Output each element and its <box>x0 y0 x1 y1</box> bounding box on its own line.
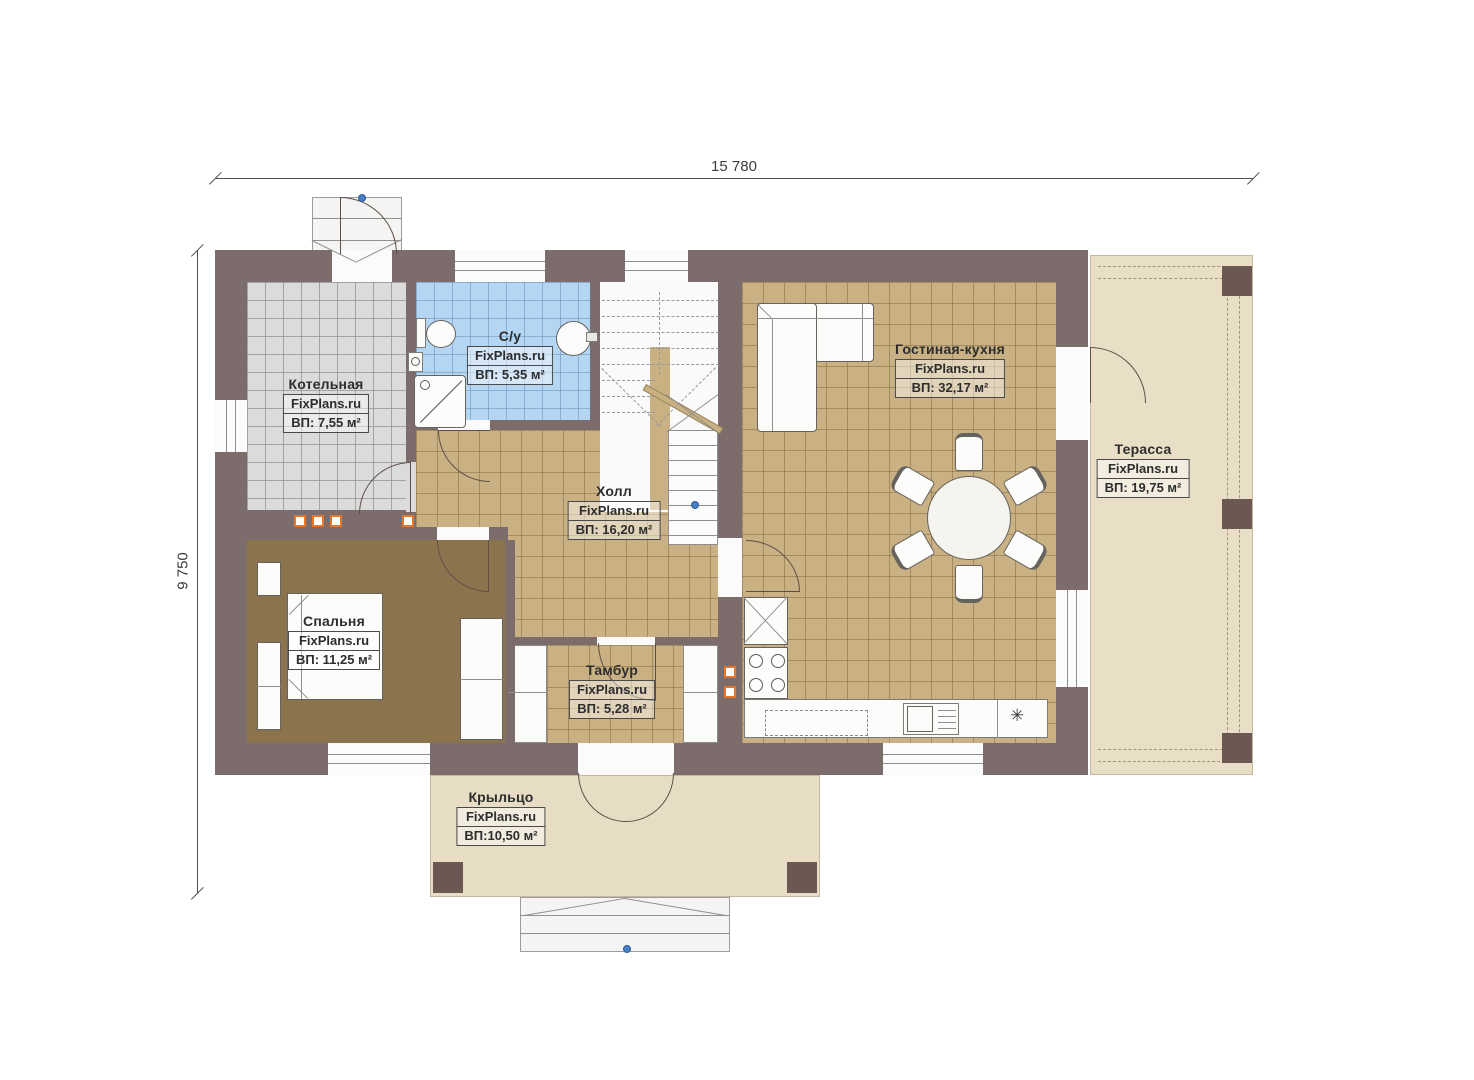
wall-exterior-left <box>215 250 247 775</box>
wall-bathroom-stairs <box>590 282 600 420</box>
closet-right <box>683 645 718 743</box>
terrace-post <box>1222 499 1252 529</box>
blue-marker-dot <box>691 501 699 509</box>
door-opening-entry <box>578 743 674 775</box>
stair-center-dashed <box>659 292 660 375</box>
dresser-divider <box>257 686 281 687</box>
room-brand: FixPlans.ru <box>456 807 545 827</box>
room-area: ВП: 11,25 м² <box>288 650 380 670</box>
stair-tread-dashed <box>602 300 719 301</box>
boiler-door-leaf <box>340 197 341 254</box>
sink-tap <box>586 332 598 342</box>
door-leaf <box>410 462 411 514</box>
room-area: ВП: 32,17 м² <box>895 378 1005 398</box>
flue-vent <box>724 686 736 698</box>
room-brand: FixPlans.ru <box>569 680 655 700</box>
room-name: Холл <box>568 483 661 499</box>
nightstand <box>257 562 281 596</box>
door-leaf <box>1090 347 1091 403</box>
sink-drainboard-line <box>938 710 956 711</box>
door-opening-hall-living <box>718 538 742 597</box>
dimension-height-label: 9 750 <box>175 552 192 590</box>
terrace-edge-dashed <box>1098 278 1228 750</box>
room-label-boiler: Котельная FixPlans.ru ВП: 7,55 м² <box>283 376 369 433</box>
terrace-post <box>1222 733 1252 763</box>
room-label-porch: Крыльцо FixPlans.ru ВП:10,50 м² <box>456 789 545 846</box>
sofa-armrest <box>862 304 863 361</box>
sink-basin <box>907 706 933 732</box>
room-area: ВП: 7,55 м² <box>283 413 369 433</box>
dimension-line-left <box>197 250 198 893</box>
dining-chair <box>955 565 983 603</box>
wall-bedroom-vestibule <box>505 540 515 743</box>
stove-burner <box>771 678 785 692</box>
room-name: Тамбур <box>569 662 655 678</box>
dining-table <box>927 476 1011 560</box>
room-brand: FixPlans.ru <box>467 346 553 366</box>
stair-tread-dashed <box>602 380 655 381</box>
window-top-bathroom <box>455 250 545 282</box>
sink-drainboard-line <box>938 716 956 717</box>
room-area: ВП: 19,75 м² <box>1097 478 1190 498</box>
room-name: Крыльцо <box>456 789 545 805</box>
toilet-tank-icon <box>416 318 426 348</box>
flue-vent <box>330 515 342 527</box>
window-top-stairs <box>625 250 688 282</box>
room-name: С/у <box>467 328 553 344</box>
window-bottom-bedroom <box>328 743 430 775</box>
room-area: ВП: 5,35 м² <box>467 365 553 385</box>
room-brand: FixPlans.ru <box>288 631 380 651</box>
sofa-seam <box>772 318 773 431</box>
stove-burner <box>749 654 763 668</box>
kitchen-symbol: ✳ <box>1010 706 1024 726</box>
room-name: Спальня <box>288 613 380 629</box>
door-leaf <box>655 643 656 701</box>
porch-steps <box>520 897 730 952</box>
stair-tread-dashed <box>602 332 719 333</box>
room-brand: FixPlans.ru <box>895 359 1005 379</box>
dishwasher-outline <box>765 710 868 736</box>
window-left-boiler <box>215 400 247 452</box>
flue-vent <box>294 515 306 527</box>
stair-lower-flight <box>668 430 718 545</box>
closet-shelf-line <box>683 692 718 693</box>
toilet-bowl-icon <box>426 320 456 348</box>
dimension-line-top <box>215 178 1253 179</box>
stair-tread <box>668 475 718 476</box>
room-area: ВП:10,50 м² <box>456 826 545 846</box>
stair-tread <box>668 445 718 446</box>
room-label-bedroom: Спальня FixPlans.ru ВП: 11,25 м² <box>288 613 380 670</box>
window-bottom-kitchen <box>883 743 983 775</box>
flue-vent <box>312 515 324 527</box>
sink-drainboard-line <box>938 722 956 723</box>
room-label-bathroom: С/у FixPlans.ru ВП: 5,35 м² <box>467 328 553 385</box>
room-label-vestibule: Тамбур FixPlans.ru ВП: 5,28 м² <box>569 662 655 719</box>
closet-shelf-line <box>508 692 547 693</box>
door-opening-terrace <box>1056 347 1088 440</box>
room-label-terrace: Терасса FixPlans.ru ВП: 19,75 м² <box>1097 441 1190 498</box>
stair-tread-dashed <box>602 364 719 365</box>
porch-post <box>787 862 817 893</box>
room-brand: FixPlans.ru <box>568 501 661 521</box>
sink-drainboard-line <box>938 728 956 729</box>
porch-post <box>433 862 463 893</box>
door-leaf <box>746 591 800 592</box>
window-right-living <box>1056 590 1088 687</box>
dining-chair <box>955 433 983 471</box>
stair-tread <box>668 520 718 521</box>
dimension-width-label: 15 780 <box>711 158 757 175</box>
stove-burner <box>771 654 785 668</box>
step-line <box>520 933 730 934</box>
wall-exterior-right <box>1056 250 1088 775</box>
door-leaf <box>488 540 489 592</box>
wardrobe-divider <box>460 679 503 680</box>
terrace-post <box>1222 266 1252 296</box>
step-line <box>520 915 730 916</box>
flue-vent <box>724 666 736 678</box>
room-name: Гостиная-кухня <box>895 341 1005 357</box>
flue-vent <box>402 515 414 527</box>
stair-tread <box>668 535 718 536</box>
stair-tread-dashed <box>602 316 719 317</box>
room-brand: FixPlans.ru <box>1097 459 1190 479</box>
room-area: ВП: 5,28 м² <box>569 699 655 719</box>
shower-head <box>420 380 430 390</box>
stair-tread <box>668 490 718 491</box>
room-area: ВП: 16,20 м² <box>568 520 661 540</box>
stair-tread-dashed <box>602 348 719 349</box>
room-brand: FixPlans.ru <box>283 394 369 414</box>
counter-divider <box>997 700 998 738</box>
room-name: Терасса <box>1097 441 1190 457</box>
stair-tread <box>668 460 718 461</box>
sofa-vertical <box>757 303 817 432</box>
blue-marker-dot <box>358 194 366 202</box>
door-opening-bedroom <box>437 527 489 540</box>
sofa-seam <box>757 318 873 319</box>
floor-plan-canvas: 15 780 9 750 <box>0 0 1474 1080</box>
blue-marker-dot <box>623 945 631 953</box>
door-leaf <box>438 430 490 431</box>
room-label-living-kitchen: Гостиная-кухня FixPlans.ru ВП: 32,17 м² <box>895 341 1005 398</box>
room-label-hall: Холл FixPlans.ru ВП: 16,20 м² <box>568 483 661 540</box>
stove-burner <box>749 678 763 692</box>
washbasin-drain <box>411 357 420 366</box>
room-name: Котельная <box>283 376 369 392</box>
